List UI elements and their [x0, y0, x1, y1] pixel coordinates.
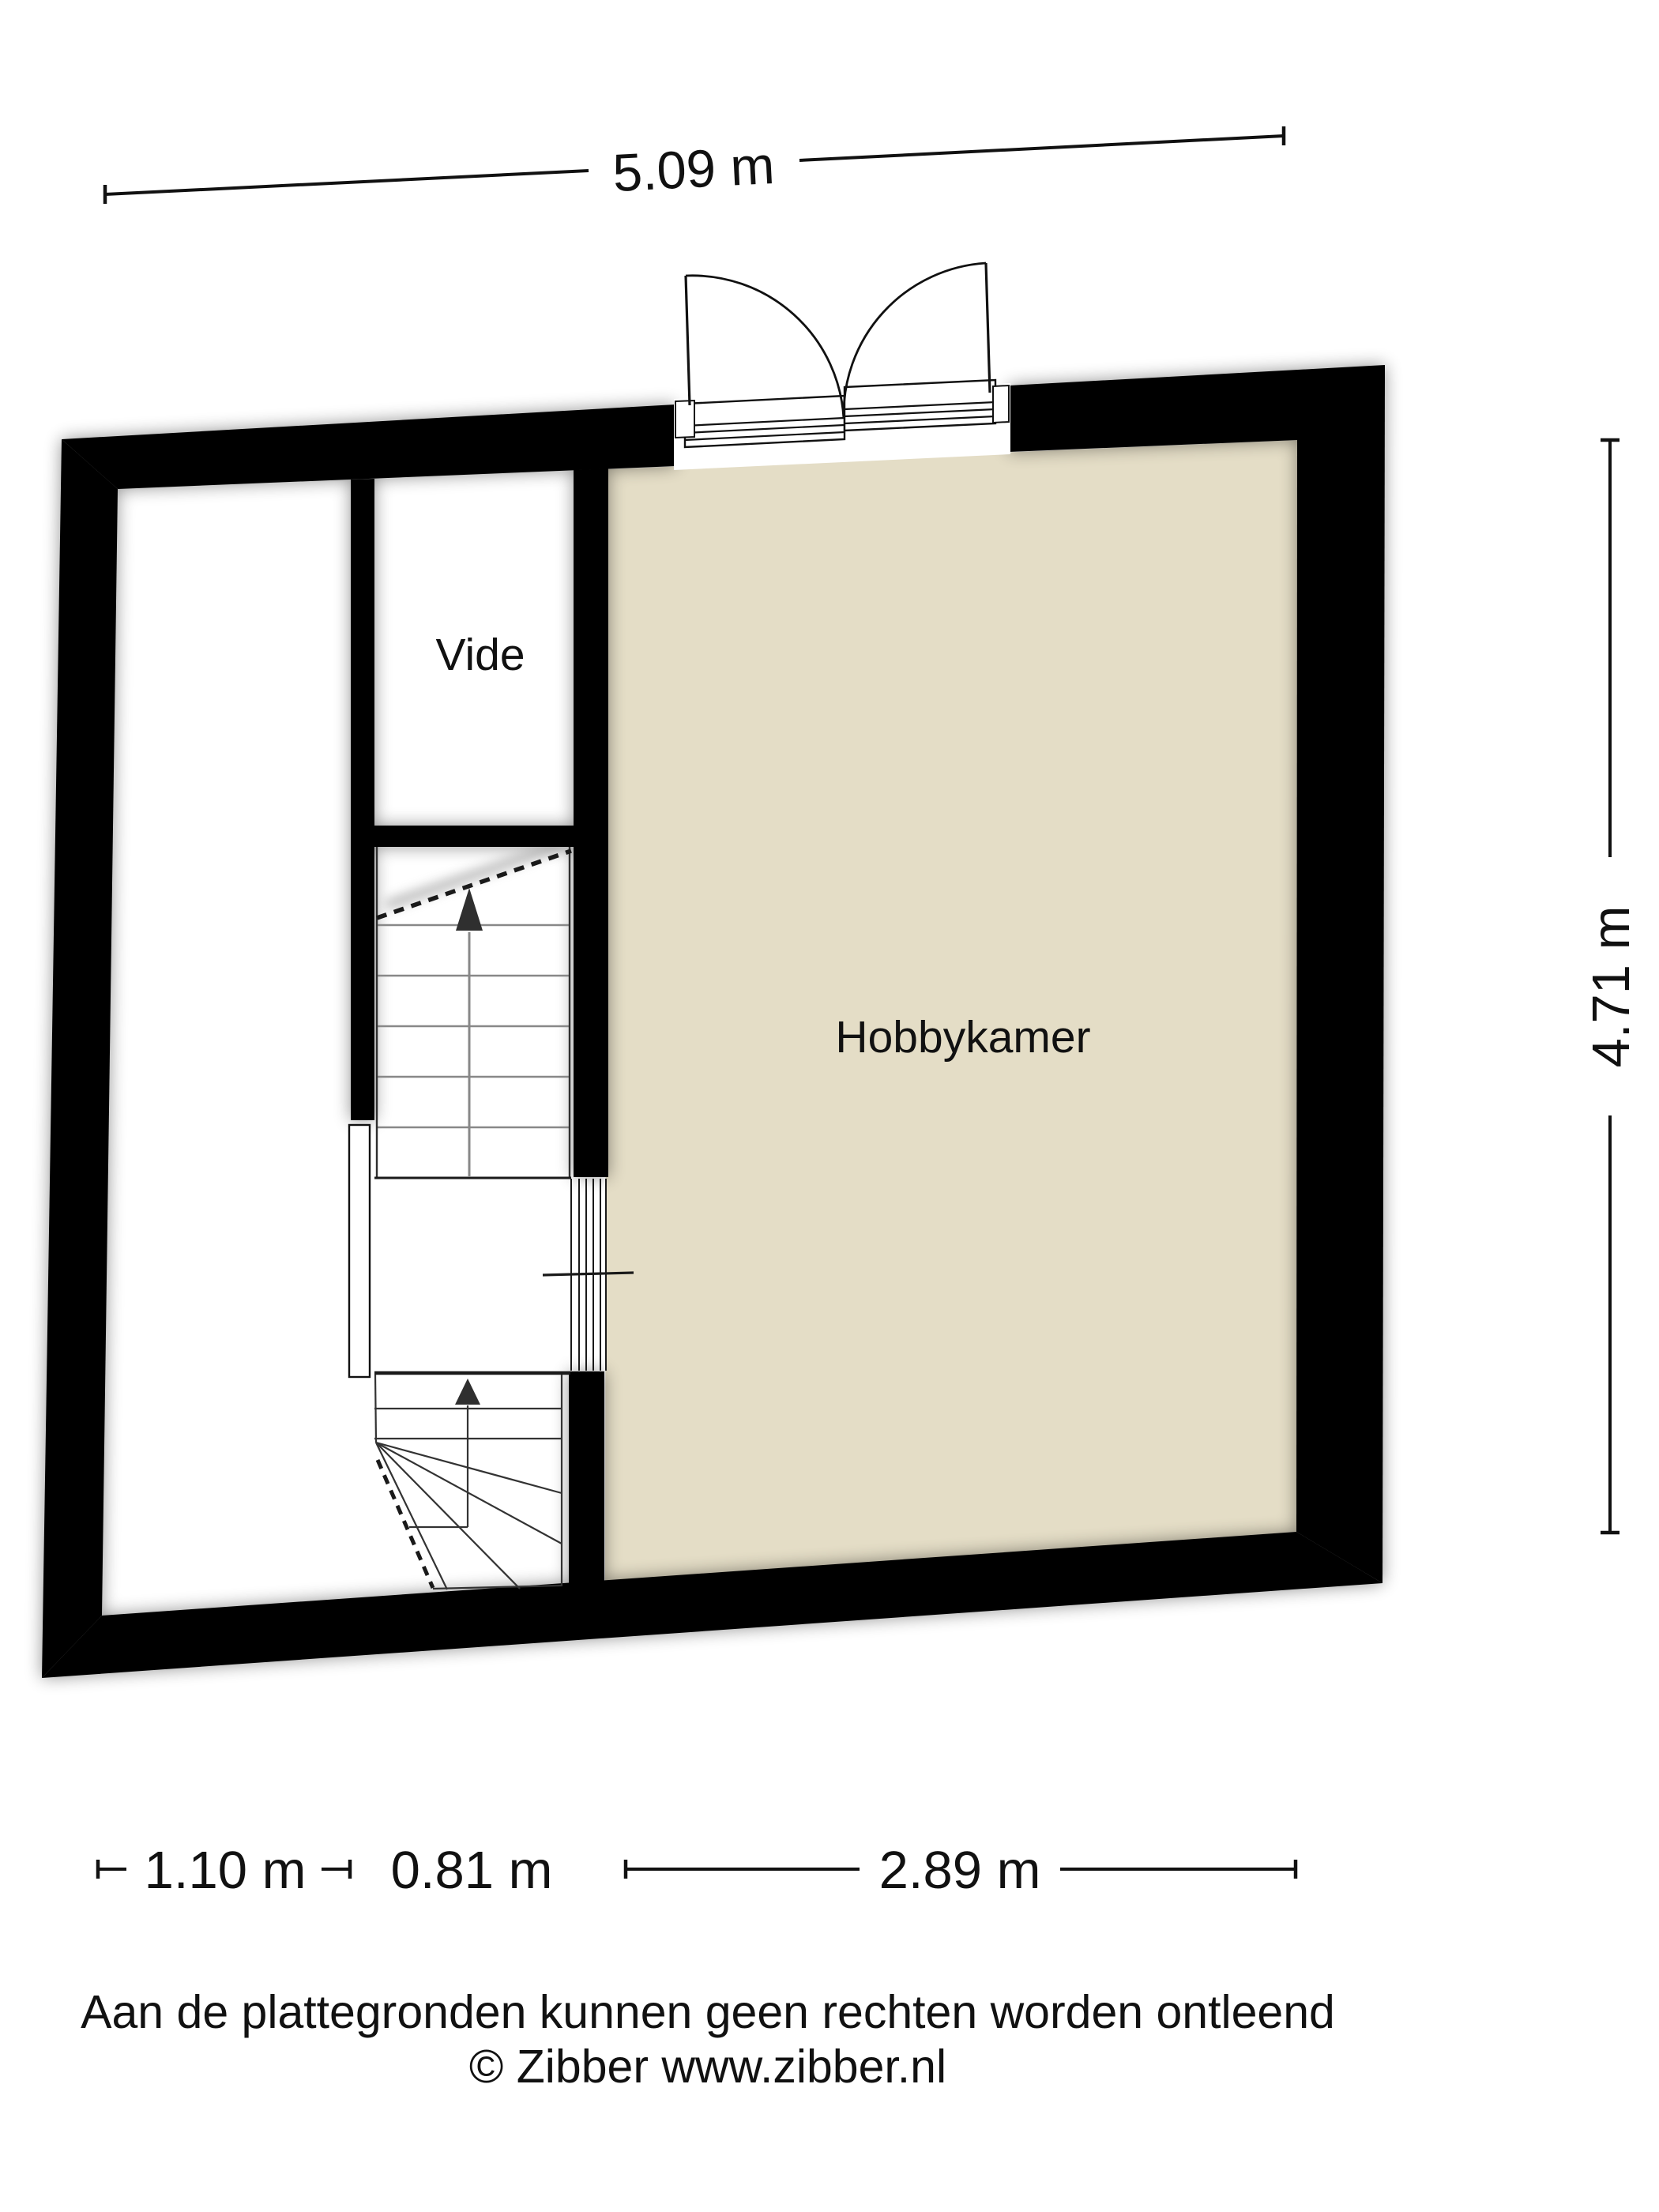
svg-text:4.71 m: 4.71 m: [1582, 906, 1641, 1068]
svg-text:© Zibber www.zibber.nl: © Zibber www.zibber.nl: [469, 2041, 946, 2093]
svg-text:2.89 m: 2.89 m: [879, 1841, 1041, 1900]
svg-text:Vide: Vide: [435, 630, 525, 680]
svg-text:Aan de plattegronden kunnen ge: Aan de plattegronden kunnen geen rechten…: [81, 1986, 1335, 2038]
svg-text:0.81 m: 0.81 m: [391, 1841, 553, 1900]
svg-text:Hobbykamer: Hobbykamer: [835, 1012, 1090, 1063]
svg-text:1.10 m: 1.10 m: [145, 1841, 307, 1900]
svg-text:5.09 m: 5.09 m: [611, 136, 776, 203]
